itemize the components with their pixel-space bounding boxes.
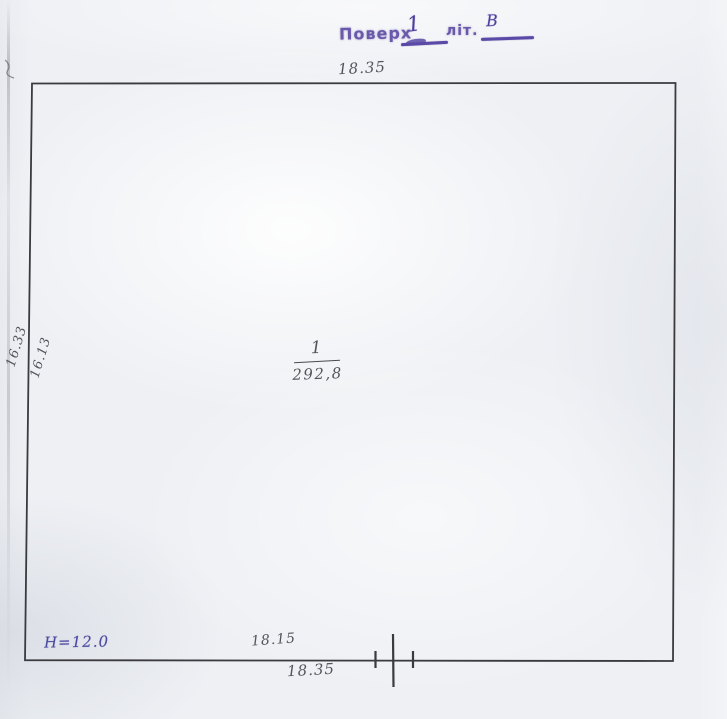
paper-edge-mark: [5, 60, 14, 78]
room-label: 1 292,8: [290, 336, 344, 384]
room-fraction-line: [294, 360, 340, 363]
stamp-floor-label: Поверх: [339, 23, 412, 43]
dimension-bottom-inner: 18.15: [250, 630, 296, 649]
dimension-bottom-outer: 18.35: [287, 660, 336, 680]
height-note: Н=12.0: [44, 632, 109, 651]
door-opening-mark-center: [393, 634, 394, 687]
plan-outline-svg: [0, 0, 727, 719]
room-number: 1: [290, 336, 343, 360]
room-outline: [25, 83, 676, 661]
dimension-top: 18.35: [338, 58, 387, 78]
scanned-floor-plan-page: Поверх 1 літ. В 18.35 16.33 16.13 18.15 …: [0, 0, 727, 719]
room-area: 292,8: [291, 364, 344, 384]
stamp-liter-label: літ.: [446, 23, 479, 39]
stamp-liter-value: В: [486, 11, 498, 30]
